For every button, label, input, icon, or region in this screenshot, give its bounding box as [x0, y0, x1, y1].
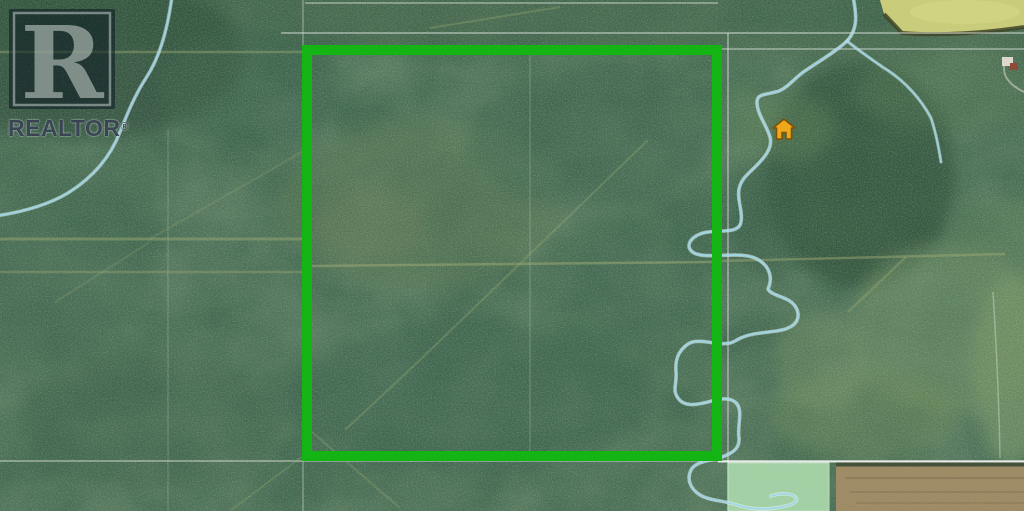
crop-field-yellow [880, 0, 1024, 34]
aerial-map [0, 0, 1024, 511]
forest-noise-light [0, 0, 1024, 511]
listing-aerial-photo: R REALTOR® [0, 0, 1024, 511]
cultivated-field [836, 462, 1024, 511]
adjacent-parcel-overlay [728, 463, 829, 511]
